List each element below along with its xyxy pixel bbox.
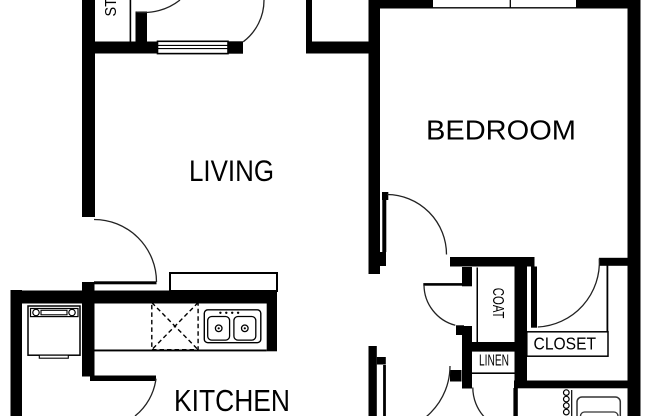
svg-text:COAT: COAT (489, 288, 506, 319)
svg-text:STAIRS: STAIRS (103, 0, 120, 17)
svg-text:BEDROOM: BEDROOM (426, 114, 576, 145)
svg-text:KITCHEN: KITCHEN (174, 384, 290, 416)
svg-text:LIVING: LIVING (189, 155, 274, 188)
svg-text:CLOSET: CLOSET (534, 334, 597, 354)
svg-text:LINEN: LINEN (479, 353, 509, 370)
